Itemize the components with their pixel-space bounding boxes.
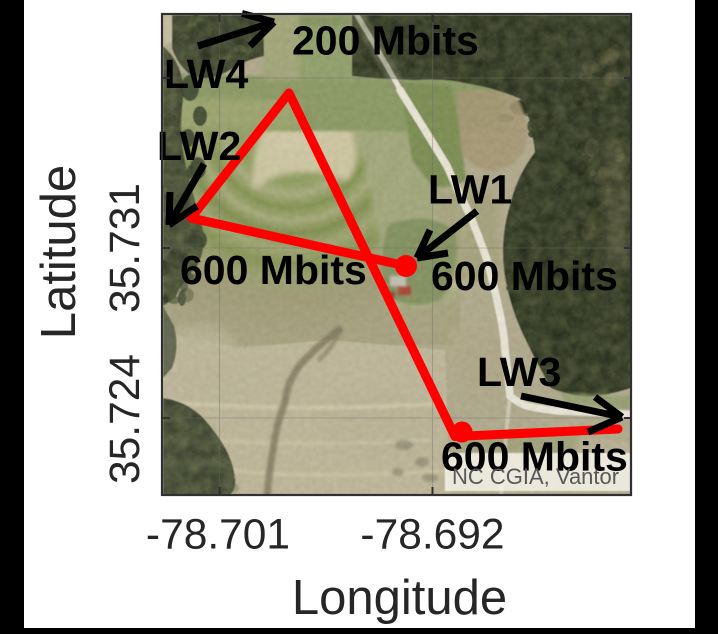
svg-text:LW2: LW2: [157, 123, 241, 169]
svg-text:NC CGIA, Vantor: NC CGIA, Vantor: [452, 464, 619, 489]
svg-text:-78.701: -78.701: [146, 512, 290, 559]
svg-text:LW4: LW4: [164, 51, 248, 97]
svg-text:Latitude: Latitude: [32, 165, 86, 339]
svg-text:600 Mbits: 600 Mbits: [431, 253, 618, 299]
svg-text:LW1: LW1: [428, 167, 512, 213]
svg-text:600 Mbits: 600 Mbits: [180, 247, 367, 293]
svg-text:-78.692: -78.692: [360, 512, 504, 559]
svg-text:LW3: LW3: [477, 349, 561, 395]
svg-text:Longitude: Longitude: [292, 571, 507, 625]
svg-text:35.724: 35.724: [102, 354, 149, 484]
svg-text:35.731: 35.731: [102, 183, 149, 313]
svg-text:200 Mbits: 200 Mbits: [292, 18, 479, 64]
